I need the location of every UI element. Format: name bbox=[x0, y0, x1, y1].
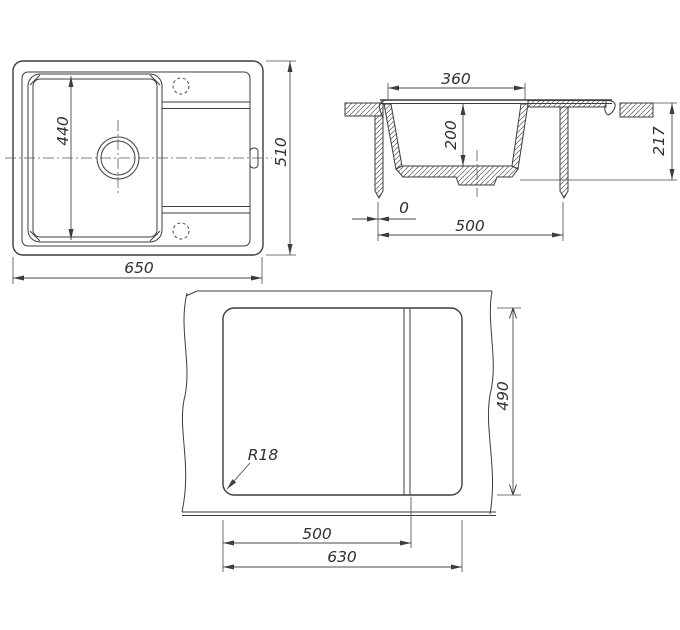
dim-corner-radius: R18 bbox=[248, 446, 279, 464]
bowl-right-wall-section bbox=[512, 104, 528, 169]
dim-bowl-zone-width: 500 bbox=[302, 525, 332, 543]
countertop-top-edge bbox=[186, 291, 492, 296]
break-line-left bbox=[182, 293, 187, 512]
plan-view: 440 510 650 bbox=[5, 61, 296, 284]
dim-total-height: 217 bbox=[650, 126, 668, 156]
technical-drawing: 440 510 650 360 bbox=[0, 0, 680, 630]
technical-drawing-page: 440 510 650 360 bbox=[0, 0, 680, 630]
cutout-outline bbox=[223, 308, 462, 495]
countertop-left-section bbox=[345, 103, 383, 116]
sink-inner-rim bbox=[22, 72, 250, 246]
tap-hole-top bbox=[173, 78, 189, 94]
drainboard-section-strip bbox=[528, 101, 606, 108]
break-line-right bbox=[488, 291, 493, 514]
dim-bowl-length: 440 bbox=[54, 116, 72, 146]
tap-hole-bottom bbox=[173, 223, 189, 239]
dim-edge-offset: 0 bbox=[399, 199, 409, 217]
dim-overall-width: 650 bbox=[124, 259, 154, 277]
bowl-bottom-section bbox=[396, 166, 518, 185]
dim-overall-depth: 510 bbox=[272, 137, 290, 167]
drainboard-edges bbox=[162, 102, 250, 213]
cutout-template-view: R18 500 630 490 bbox=[182, 291, 521, 572]
dim-bowl-top-width: 360 bbox=[441, 70, 471, 88]
dim-cutout-depth: 490 bbox=[494, 381, 512, 411]
dim-cutout-width: 630 bbox=[327, 548, 357, 566]
countertop-left-cut-edge bbox=[375, 116, 383, 198]
bowl-left-wall-section bbox=[384, 104, 402, 169]
countertop-right-cut-edge bbox=[560, 107, 568, 198]
countertop-right-section bbox=[620, 103, 653, 117]
radius-leader-line bbox=[227, 463, 250, 489]
dim-bowl-depth: 200 bbox=[442, 120, 460, 150]
dim-cutout-span: 500 bbox=[455, 217, 485, 235]
section-view: 360 200 217 0 500 bbox=[345, 70, 677, 241]
